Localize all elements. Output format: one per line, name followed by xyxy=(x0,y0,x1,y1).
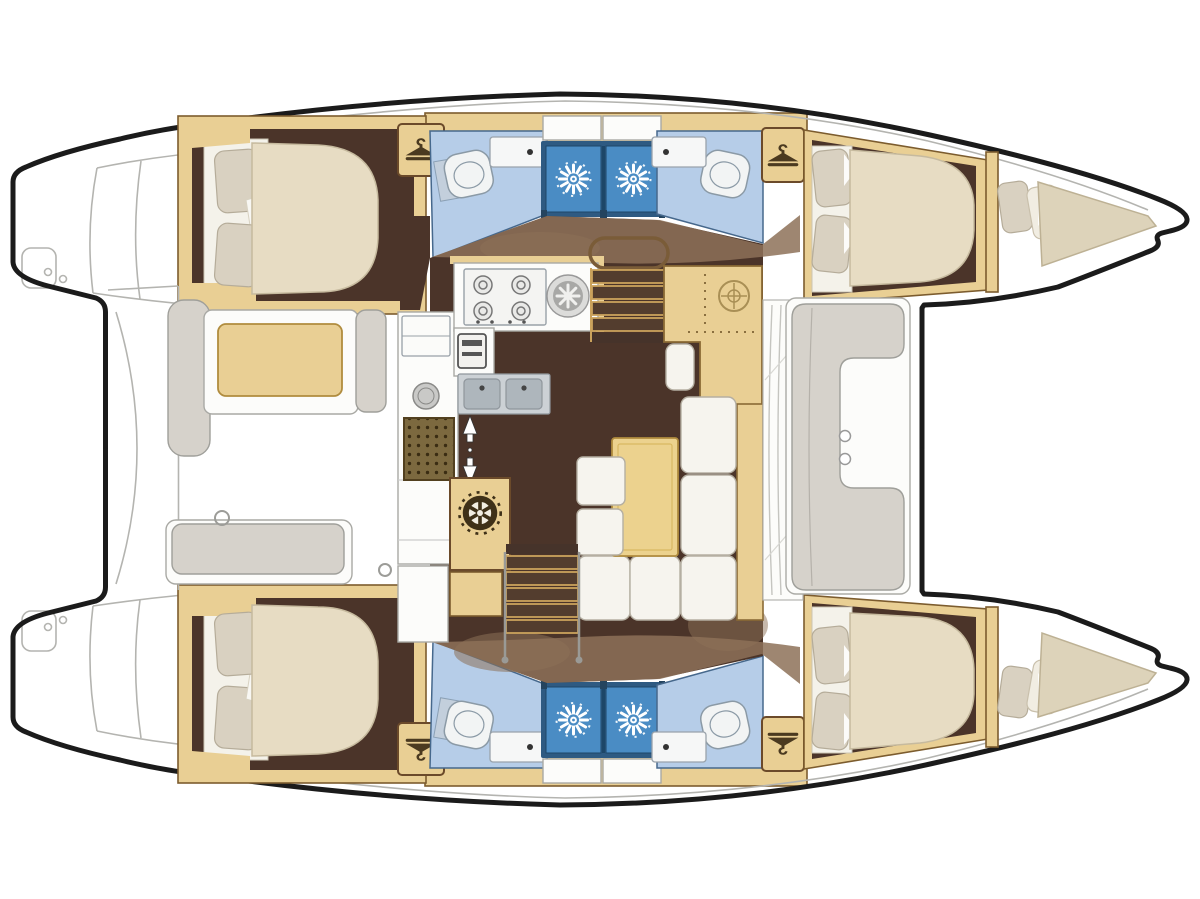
cup-holder xyxy=(840,454,851,465)
stool-cushion xyxy=(577,509,623,555)
cup-holder xyxy=(840,431,851,442)
rail-post xyxy=(576,657,583,664)
hatch-circle xyxy=(413,383,439,409)
stair-step xyxy=(506,556,578,569)
rail-post xyxy=(502,657,509,664)
forward-cockpit xyxy=(786,298,910,594)
vent-grille xyxy=(404,418,454,480)
nav-seat-cushion xyxy=(666,344,694,390)
stair-step xyxy=(506,572,578,585)
deck-curve xyxy=(116,312,137,584)
chart-table xyxy=(664,266,762,406)
stair-step xyxy=(506,620,578,633)
cockpit-edge xyxy=(108,286,178,290)
cup-holder xyxy=(379,564,391,576)
sofa-cushion xyxy=(681,397,736,473)
stair-step xyxy=(592,270,666,283)
faucet xyxy=(479,385,484,390)
aft-cockpit xyxy=(108,286,391,590)
fridge xyxy=(402,316,450,356)
salon-forward-bulkhead xyxy=(737,404,763,620)
locker xyxy=(450,572,502,616)
floor-shade xyxy=(454,632,570,672)
sofa-cushion xyxy=(681,475,736,555)
stair-landing xyxy=(506,544,578,554)
stair-step xyxy=(592,318,666,331)
stool-cushion xyxy=(577,457,625,505)
cockpit-backrest xyxy=(356,310,386,412)
stair-step xyxy=(506,588,578,601)
sofa-cushion xyxy=(681,556,736,620)
floor-plan-canvas xyxy=(0,0,1200,899)
locker xyxy=(398,566,448,642)
double-sink xyxy=(458,374,550,414)
coffee-machine xyxy=(458,334,486,368)
round-sink xyxy=(547,275,589,317)
stair-step xyxy=(592,286,666,299)
stair-step xyxy=(506,604,578,617)
sofa-cushion xyxy=(578,556,630,620)
stair-step xyxy=(592,302,666,315)
sofa-cushion xyxy=(630,556,680,620)
faucet xyxy=(521,385,526,390)
cockpit-bench-cushion xyxy=(218,324,342,396)
catamaran-floor-plan xyxy=(0,0,1200,899)
cockpit-sofa xyxy=(172,524,344,574)
stair-landing xyxy=(592,333,666,343)
